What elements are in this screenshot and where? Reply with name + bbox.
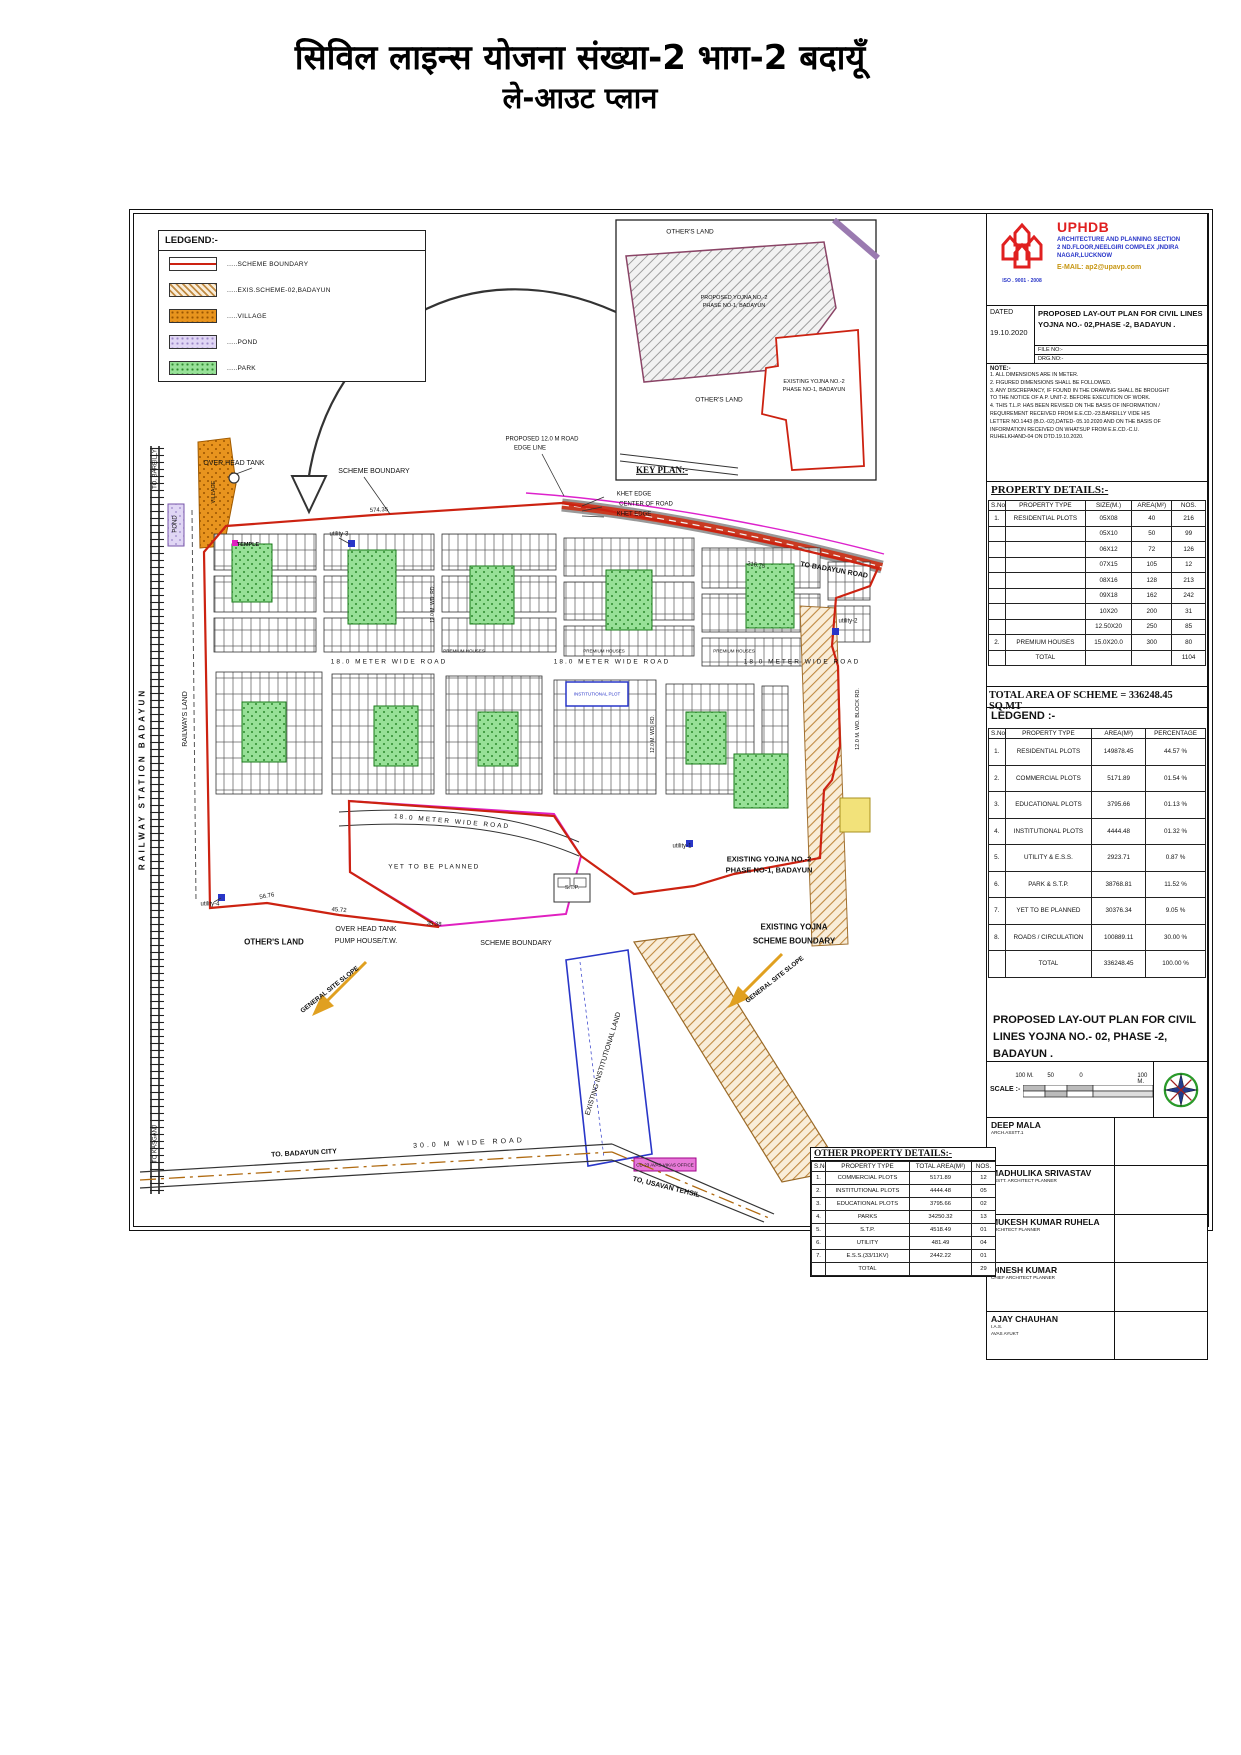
legend-item: .....VILLAGE xyxy=(159,303,425,329)
signatory-name: DEEP MALA xyxy=(991,1120,1110,1130)
signature-space xyxy=(1114,1118,1207,1165)
table-row: 7.E.S.S.(33/11KV)2442.2201 xyxy=(812,1250,996,1263)
table-row: 08X16128213 xyxy=(989,573,1206,589)
bottom-roads xyxy=(140,1144,774,1222)
table-row: 6.PARK & S.T.P.38768.8111.52 % xyxy=(989,871,1206,898)
signatory-role: I.A.S. xyxy=(991,1324,1110,1331)
note-line: 1. ALL DIMENSIONS ARE IN METER. xyxy=(990,372,1204,380)
page-title: सिविल लाइन्स योजना संख्या-2 भाग-2 बदायूँ… xyxy=(0,36,1160,118)
legend-box: LEDGEND:- .....SCHEME BOUNDARY.....EXIS.… xyxy=(158,230,426,382)
uphdb-header: ISO . 9001 - 2008 UPHDB ARCHITECTURE AND… xyxy=(987,214,1207,306)
signature-row: DEEP MALAARCH.ASSTT.1 xyxy=(987,1118,1207,1166)
legend-item: .....SCHEME BOUNDARY xyxy=(159,251,425,277)
scale-tick-label: 50 xyxy=(1047,1073,1054,1079)
signatory-name: DINESH KUMAR xyxy=(991,1265,1110,1275)
scale-tick-label: 100 M. xyxy=(1015,1073,1033,1079)
institutional-plot xyxy=(566,682,628,706)
legend-item-label: .....EXIS.SCHEME-02,BADAYUN xyxy=(227,287,331,294)
table-row: TOTAL29 xyxy=(812,1263,996,1276)
table-row: 5.S.T.P.4518.4901 xyxy=(812,1224,996,1237)
legend-item-label: .....POND xyxy=(227,339,258,346)
table-row: 4.INSTITUTIONAL PLOTS4444.4801.32 % xyxy=(989,818,1206,845)
ledgend-table: S.No.PROPERTY TYPEAREA(M²)PERCENTAGE1.RE… xyxy=(988,728,1206,978)
legend-item: .....PARK xyxy=(159,355,425,381)
table-row: 2.COMMERCIAL PLOTS5171.8901.54 % xyxy=(989,765,1206,792)
table-row: TOTAL336248.45100.00 % xyxy=(989,951,1206,978)
note-line: 3. ANY DISCREPANCY, IF FOUND IN THE DRAW… xyxy=(990,388,1204,396)
signature-row: DINESH KUMARCHIEF ARCHITECT PLANNER xyxy=(987,1263,1207,1311)
note-line: RUHELKHAND-04 ON DTD.19.10.2020. xyxy=(990,434,1204,442)
signature-block: DEEP MALAARCH.ASSTT.1MADHULIKA SRIVASTAV… xyxy=(987,1118,1207,1359)
legend-item-label: .....SCHEME BOUNDARY xyxy=(227,261,308,268)
signature-row: MADHULIKA SRIVASTAVASSTT. ARCHITECT PLAN… xyxy=(987,1166,1207,1214)
exis-scheme-band-bottom xyxy=(634,934,842,1182)
pond-swatch-icon xyxy=(169,335,217,349)
note-line: 2. FIGURED DIMENSIONS SHALL BE FOLLOWED. xyxy=(990,380,1204,388)
other-property-details: OTHER PROPERTY DETAILS:- S.No.PROPERTY T… xyxy=(810,1147,996,1277)
table-row: 6.UTILITY481.4904 xyxy=(812,1237,996,1250)
dated-label: DATED xyxy=(990,309,1031,316)
email-value: ap2@upavp.com xyxy=(1085,264,1141,271)
table-row: 2.INSTITUTIONAL PLOTS4444.4805 xyxy=(812,1185,996,1198)
table-row: 06X1272126 xyxy=(989,542,1206,558)
scale-tick-label: 0 xyxy=(1079,1073,1082,1079)
ledgend-title: LEDGEND :- xyxy=(987,708,1207,728)
signatory-role: ARCHITECT PLANNER xyxy=(991,1227,1110,1234)
table-row: 3.EDUCATIONAL PLOTS3795.6601.13 % xyxy=(989,792,1206,819)
table-row: 7.YET TO BE PLANNED30376.349.05 % xyxy=(989,898,1206,925)
utility-yellow-plot xyxy=(840,798,870,832)
village-area xyxy=(198,438,236,548)
signature-space xyxy=(1114,1263,1207,1310)
signature-space xyxy=(1114,1215,1207,1262)
other-property-title: OTHER PROPERTY DETAILS:- xyxy=(811,1148,995,1161)
exis-scheme-strip-right xyxy=(800,606,848,946)
table-row: 3.EDUCATIONAL PLOTS3795.6602 xyxy=(812,1198,996,1211)
file-no: FILE NO:- xyxy=(1035,345,1207,354)
table-row: 12.50X2025085 xyxy=(989,619,1206,635)
drawing-title: PROPOSED LAY-OUT PLAN FOR CIVIL LINES YO… xyxy=(1035,306,1207,345)
stp-plot xyxy=(554,874,590,902)
legend-item: .....EXIS.SCHEME-02,BADAYUN xyxy=(159,277,425,303)
scale-bar: 100 M.500100 M. xyxy=(1023,1073,1153,1107)
village-swatch-icon xyxy=(169,309,217,323)
notes-block: NOTE:- 1. ALL DIMENSIONS ARE IN METER.2.… xyxy=(987,364,1207,482)
property-details-title: PROPERTY DETAILS:- xyxy=(987,482,1207,498)
table-row: 5.UTILITY & E.S.S.2923.710.87 % xyxy=(989,845,1206,872)
signature-space xyxy=(1114,1166,1207,1213)
north-compass-icon xyxy=(1153,1062,1207,1117)
signatory-role: CHIEF ARCHITECT PLANNER xyxy=(991,1275,1110,1282)
layout-plan-page: { "page_title": { "line1": "सिविल लाइन्स… xyxy=(0,0,1241,1755)
signature-space xyxy=(1114,1312,1207,1359)
table-row: 2.PREMIUM HOUSES15.0X20.030080 xyxy=(989,635,1206,651)
site-plan-map: OVER HEAD TANKSCHEME BOUNDARYPROPOSED 12… xyxy=(134,214,986,1225)
scale-block: SCALE :- 100 M.500100 M. xyxy=(987,1062,1207,1118)
scale-tick-label: 100 M. xyxy=(1137,1073,1153,1085)
signature-row: AJAY CHAUHANI.A.S.AVAS AYUKT xyxy=(987,1312,1207,1359)
dated-value: 19.10.2020 xyxy=(990,328,1031,337)
table-header-row: S.No.PROPERTY TYPESIZE(M.)AREA(M²)NOS. xyxy=(989,501,1206,511)
table-row: 8.ROADS / CIRCULATION100889.1130.00 % xyxy=(989,924,1206,951)
org-email: E-MAIL: ap2@upavp.com xyxy=(1057,264,1203,271)
table-row: 05X105099 xyxy=(989,526,1206,542)
table-row: 4.PARKS34250.3213 xyxy=(812,1211,996,1224)
park-swatch-icon xyxy=(169,361,217,375)
table-header-row: S.No.PROPERTY TYPEAREA(M²)PERCENTAGE xyxy=(989,729,1206,739)
table-row: 1.RESIDENTIAL PLOTS05X0840216 xyxy=(989,511,1206,527)
pond-area xyxy=(168,504,184,546)
org-dept: ARCHITECTURE AND PLANNING SECTION xyxy=(1057,237,1203,245)
table-row: 1.COMMERCIAL PLOTS5171.8912 xyxy=(812,1172,996,1185)
title-block-panel: ISO . 9001 - 2008 UPHDB ARCHITECTURE AND… xyxy=(986,214,1208,1360)
signature-row: MUKESH KUMAR RUHELAARCHITECT PLANNER xyxy=(987,1215,1207,1263)
scale-label: SCALE :- xyxy=(987,1086,1023,1093)
legend-item-label: .....VILLAGE xyxy=(227,313,267,320)
note-line: INFORMATION RECEIVED ON WHATSUP FROM E.E… xyxy=(990,427,1204,435)
signatory-name: MUKESH KUMAR RUHELA xyxy=(991,1217,1110,1227)
org-name: UPHDB xyxy=(1057,219,1203,235)
table-row: 09X18162242 xyxy=(989,588,1206,604)
hatched-swatch-icon xyxy=(169,283,217,297)
page-title-line2: ले-आउट प्लान xyxy=(0,80,1160,118)
table-header-row: S.No.PROPERTY TYPETOTAL AREA(M²)NOS. xyxy=(812,1162,996,1172)
signatory-role: ASSTT. ARCHITECT PLANNER xyxy=(991,1178,1110,1185)
legend-title: LEDGEND:- xyxy=(159,231,425,251)
legend-item-label: .....PARK xyxy=(227,365,256,372)
dated-block: DATED 19.10.2020 PROPOSED LAY-OUT PLAN F… xyxy=(987,306,1207,364)
uphdb-logo-icon: ISO . 9001 - 2008 xyxy=(991,219,1053,300)
existing-institutional-land xyxy=(566,950,652,1166)
page-title-line1: सिविल लाइन्स योजना संख्या-2 भाग-2 बदायूँ xyxy=(0,36,1160,80)
signatory-name: MADHULIKA SRIVASTAV xyxy=(991,1168,1110,1178)
table-row: TOTAL1104 xyxy=(989,650,1206,666)
note-line: TO THE NOTICE OF A.P. UNIT-2. BEFORE EXE… xyxy=(990,395,1204,403)
drawing-sheet: OVER HEAD TANKSCHEME BOUNDARYPROPOSED 12… xyxy=(133,213,1209,1227)
note-line: LETTER NO.1443 (B.D.-02),DATED- 05.10.20… xyxy=(990,419,1204,427)
legend-item: .....POND xyxy=(159,329,425,355)
yet-to-be-planned-boundary xyxy=(349,801,581,926)
drg-no: DRG.NO:- xyxy=(1035,354,1207,363)
org-address: 2 ND.FLOOR,NEELGIRI COMPLEX ,INDIRA NAGA… xyxy=(1057,245,1203,261)
total-area-of-scheme: TOTAL AREA OF SCHEME = 336248.45 SQ.MT xyxy=(987,686,1207,708)
iso-certification: ISO . 9001 - 2008 xyxy=(991,278,1053,284)
other-property-table: S.No.PROPERTY TYPETOTAL AREA(M²)NOS.1.CO… xyxy=(811,1161,996,1276)
property-details-table: S.No.PROPERTY TYPESIZE(M.)AREA(M²)NOS.1.… xyxy=(988,500,1206,666)
table-row: 10X2020031 xyxy=(989,604,1206,620)
railway-line xyxy=(150,446,196,1194)
note-line: 4. THIS T.L.P. HAS BEEN REVISED ON THE B… xyxy=(990,403,1204,411)
scheme-boundary-swatch-icon xyxy=(169,257,217,271)
signatory-role: ARCH.ASSTT.1 xyxy=(991,1130,1110,1137)
signatory-role: AVAS AYUKT xyxy=(991,1331,1110,1338)
plan-title: PROPOSED LAY-OUT PLAN FOR CIVIL LINES YO… xyxy=(987,1006,1207,1062)
key-plan xyxy=(616,220,878,480)
note-line: REQUIREMENT RECEIVED FROM E.E.CD.-23.BAR… xyxy=(990,411,1204,419)
table-row: 1.RESIDENTIAL PLOTS149878.4544.57 % xyxy=(989,739,1206,766)
signatory-name: AJAY CHAUHAN xyxy=(991,1314,1110,1324)
table-row: 07X1510512 xyxy=(989,557,1206,573)
